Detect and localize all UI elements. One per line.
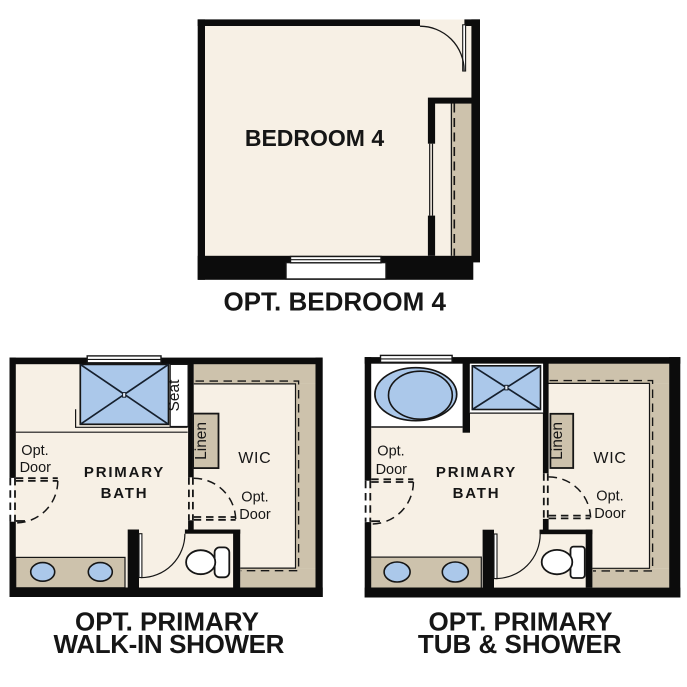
svg-text:Linen: Linen xyxy=(549,422,566,460)
svg-text:Opt.: Opt. xyxy=(596,489,623,505)
svg-text:Door: Door xyxy=(20,460,52,476)
svg-text:Door: Door xyxy=(239,507,271,523)
svg-text:PRIMARY: PRIMARY xyxy=(436,464,517,481)
svg-text:WALK-IN SHOWER: WALK-IN SHOWER xyxy=(54,629,285,659)
svg-text:Opt.: Opt. xyxy=(21,443,48,459)
svg-text:Opt.: Opt. xyxy=(377,444,404,460)
svg-text:BATH: BATH xyxy=(453,485,501,502)
svg-text:Door: Door xyxy=(376,462,408,478)
svg-text:Opt.: Opt. xyxy=(241,490,268,506)
svg-text:OPT. BEDROOM 4: OPT. BEDROOM 4 xyxy=(223,287,446,317)
svg-text:PRIMARY: PRIMARY xyxy=(84,464,165,481)
svg-text:TUB & SHOWER: TUB & SHOWER xyxy=(418,629,622,659)
svg-text:WIC: WIC xyxy=(238,450,271,467)
svg-text:WIC: WIC xyxy=(593,450,626,467)
svg-text:Seat: Seat xyxy=(166,379,183,412)
svg-text:Door: Door xyxy=(594,506,626,522)
svg-text:BEDROOM 4: BEDROOM 4 xyxy=(245,125,385,151)
svg-text:BATH: BATH xyxy=(101,485,149,502)
svg-text:Linen: Linen xyxy=(193,422,210,460)
